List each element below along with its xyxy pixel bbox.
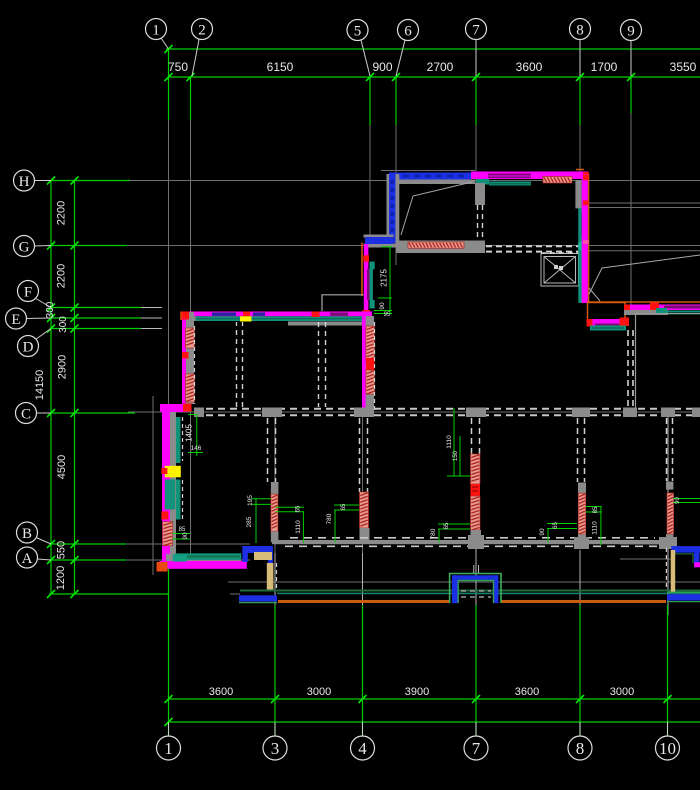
svg-text:4: 4 bbox=[358, 739, 367, 758]
svg-text:2175: 2175 bbox=[380, 269, 389, 287]
svg-text:65: 65 bbox=[444, 522, 450, 529]
svg-text:65: 65 bbox=[296, 505, 302, 512]
svg-text:6150: 6150 bbox=[267, 60, 294, 74]
svg-text:1700: 1700 bbox=[591, 60, 618, 74]
svg-text:1405: 1405 bbox=[185, 424, 194, 442]
svg-text:550: 550 bbox=[56, 541, 68, 559]
svg-text:3600: 3600 bbox=[516, 60, 543, 74]
svg-text:3550: 3550 bbox=[670, 60, 697, 74]
svg-text:H: H bbox=[19, 174, 30, 190]
svg-text:90: 90 bbox=[675, 497, 681, 504]
svg-text:300: 300 bbox=[45, 301, 56, 318]
svg-text:285: 285 bbox=[246, 516, 253, 527]
svg-text:7: 7 bbox=[472, 22, 480, 38]
svg-text:E: E bbox=[11, 312, 20, 328]
svg-text:D: D bbox=[23, 339, 34, 355]
svg-text:2700: 2700 bbox=[427, 60, 454, 74]
svg-text:780: 780 bbox=[430, 528, 437, 539]
svg-text:3600: 3600 bbox=[515, 686, 539, 698]
svg-text:2200: 2200 bbox=[56, 264, 68, 288]
svg-text:3: 3 bbox=[271, 739, 280, 758]
svg-text:85: 85 bbox=[593, 506, 599, 513]
svg-text:65: 65 bbox=[341, 503, 347, 510]
svg-text:3000: 3000 bbox=[307, 686, 331, 698]
svg-text:150: 150 bbox=[453, 450, 459, 461]
svg-text:90: 90 bbox=[539, 528, 546, 536]
svg-text:2900: 2900 bbox=[57, 355, 69, 379]
svg-text:1: 1 bbox=[164, 739, 173, 758]
svg-text:900: 900 bbox=[372, 60, 392, 74]
svg-text:2200: 2200 bbox=[56, 201, 68, 225]
svg-text:4500: 4500 bbox=[56, 455, 68, 479]
svg-text:65: 65 bbox=[553, 522, 559, 529]
svg-text:1200: 1200 bbox=[55, 566, 67, 590]
svg-text:C: C bbox=[21, 406, 31, 422]
svg-text:195: 195 bbox=[247, 495, 254, 506]
svg-text:95: 95 bbox=[384, 312, 391, 318]
svg-text:90: 90 bbox=[182, 532, 189, 540]
svg-text:G: G bbox=[19, 239, 30, 255]
svg-text:85: 85 bbox=[179, 527, 186, 533]
svg-text:1110: 1110 bbox=[446, 435, 453, 449]
svg-text:1: 1 bbox=[152, 22, 160, 38]
svg-text:3000: 3000 bbox=[610, 686, 634, 698]
svg-text:9: 9 bbox=[627, 23, 635, 39]
svg-text:146: 146 bbox=[191, 445, 202, 452]
svg-text:3900: 3900 bbox=[405, 686, 429, 698]
svg-text:780: 780 bbox=[326, 513, 333, 524]
svg-text:90: 90 bbox=[379, 302, 386, 310]
svg-text:2: 2 bbox=[198, 22, 206, 38]
svg-text:A: A bbox=[22, 551, 33, 567]
svg-text:7: 7 bbox=[472, 739, 481, 758]
svg-text:750: 750 bbox=[168, 60, 188, 74]
svg-text:10: 10 bbox=[659, 739, 676, 758]
svg-text:14150: 14150 bbox=[34, 370, 46, 401]
svg-text:8: 8 bbox=[576, 22, 584, 38]
svg-text:5: 5 bbox=[354, 23, 362, 39]
svg-text:8: 8 bbox=[576, 739, 585, 758]
svg-text:1110: 1110 bbox=[592, 521, 599, 535]
svg-text:6: 6 bbox=[404, 23, 412, 39]
svg-text:300: 300 bbox=[58, 316, 69, 333]
svg-text:F: F bbox=[24, 284, 32, 300]
svg-text:B: B bbox=[22, 526, 32, 542]
svg-text:3600: 3600 bbox=[209, 686, 233, 698]
svg-text:1110: 1110 bbox=[295, 520, 302, 534]
